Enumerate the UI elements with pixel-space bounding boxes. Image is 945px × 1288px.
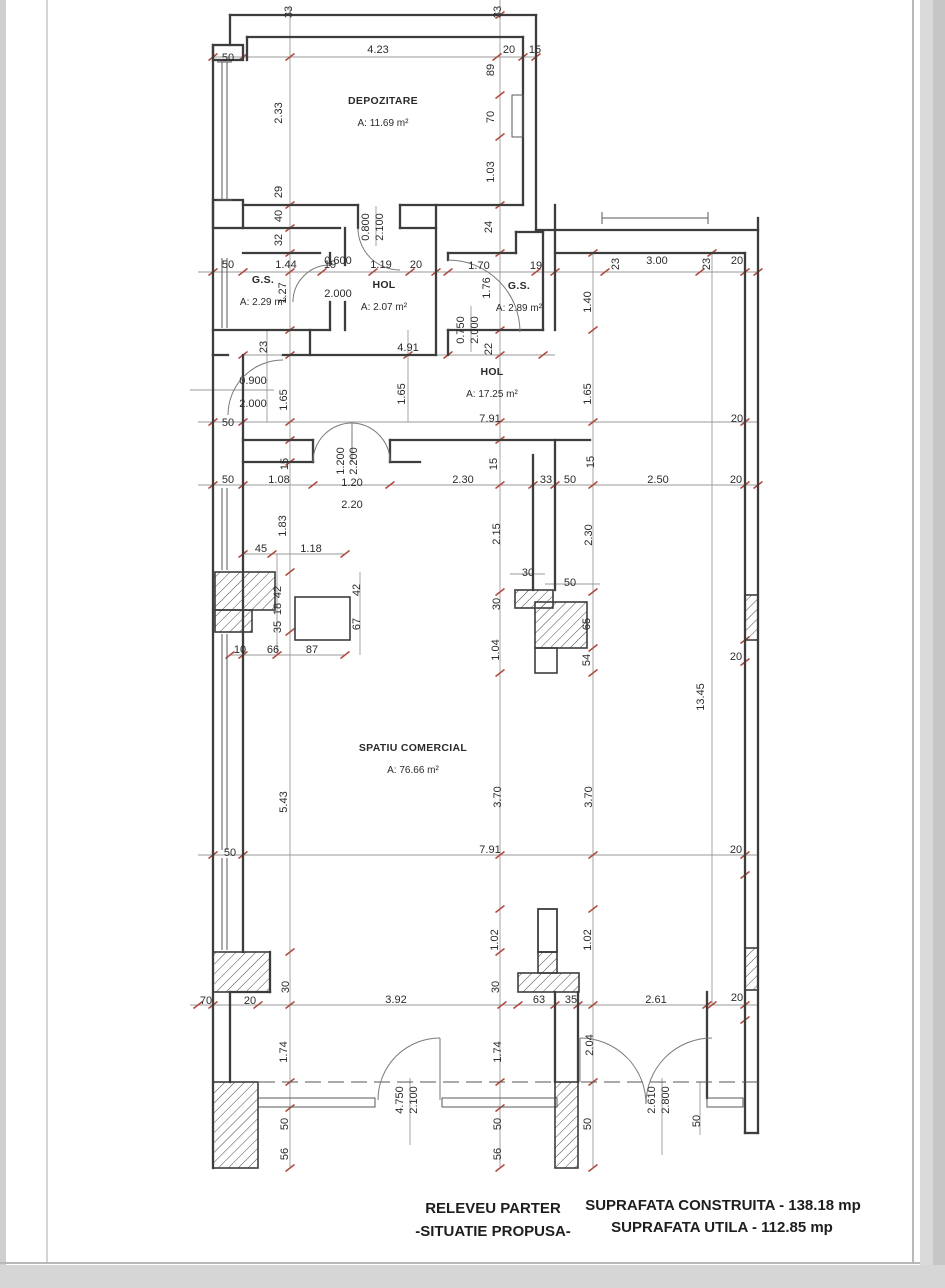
dimension-label: 32 [273, 234, 285, 246]
dimension-label: 50 [564, 474, 576, 486]
dimension-label: 2.50 [647, 474, 668, 486]
dimension-label: 89 [485, 64, 497, 76]
dimension-label: 22 [483, 343, 495, 355]
dimension-label: 1.04 [490, 639, 502, 660]
dimension-label: 19 [530, 260, 542, 272]
dimension-label: 23 [258, 341, 270, 353]
dimension-label: 42 [351, 584, 363, 596]
room-name-label: G.S. [508, 280, 530, 292]
dimension-label: 35 [565, 994, 577, 1006]
dimension-label: 1.08 [268, 474, 289, 486]
dimension-label: 70 [200, 995, 212, 1007]
dimension-label: 0.800 [360, 213, 372, 241]
dimension-label: 23 [701, 258, 713, 270]
dimension-label: 2.04 [584, 1034, 596, 1055]
dimension-label: 50 [224, 847, 236, 859]
room-area-label: A: 2.89 m² [496, 303, 543, 314]
dimension-label: 2.33 [273, 102, 285, 123]
dimension-label: 20 [503, 44, 515, 56]
dimension-label: 1.20 [341, 477, 362, 489]
dimension-label: 30 [491, 598, 503, 610]
floor-plan-svg: 3333504.232015892.33701.03294032240.8002… [0, 0, 945, 1288]
dimension-label: 2.000 [469, 316, 481, 344]
dimension-label: 50 [492, 1118, 504, 1130]
dimension-label: 15 [585, 456, 597, 468]
dimension-label: 1.65 [396, 383, 408, 404]
dimension-label: 20 [731, 255, 743, 267]
dimension-label: 0.600 [324, 255, 352, 267]
dimension-label: 50 [222, 52, 234, 64]
dimension-label: 4.23 [367, 44, 388, 56]
dimension-label: 18 [272, 603, 284, 615]
dimension-label: 1.44 [275, 259, 296, 271]
dimension-label: 10 [234, 644, 246, 656]
dimension-label: 30 [280, 981, 292, 993]
dimension-label: 7.91 [479, 413, 500, 425]
dimension-label: 20 [410, 259, 422, 271]
dimension-label: 4.750 [394, 1086, 406, 1114]
dimension-label: 45 [255, 543, 267, 555]
dimension-label: 13.45 [695, 683, 707, 711]
dimension-label: 2.800 [660, 1086, 672, 1114]
dimension-label: 1.74 [492, 1041, 504, 1062]
dimension-label: 1.02 [582, 929, 594, 950]
paper-background [0, 0, 945, 1288]
dimension-label: 30 [522, 567, 534, 579]
dimension-label: 2.20 [341, 499, 362, 511]
dimension-label: 33 [492, 6, 504, 18]
dimension-label: 3.70 [492, 786, 504, 807]
dimension-label: 35 [272, 621, 284, 633]
dimension-label: 56 [279, 1148, 291, 1160]
dimension-label: 1.76 [481, 277, 493, 298]
dimension-label: 0.900 [239, 375, 267, 387]
dimension-label: 2.200 [348, 447, 360, 475]
dimension-label: 2.61 [645, 994, 666, 1006]
dimension-label: 2.000 [239, 398, 267, 410]
dimension-label: 4.91 [397, 342, 418, 354]
dimension-label: 20 [730, 474, 742, 486]
dimension-label: 2.000 [324, 288, 352, 300]
dimension-label: 3.92 [385, 994, 406, 1006]
dimension-label: 50 [582, 1118, 594, 1130]
dimension-label: 1.18 [300, 543, 321, 555]
dimension-label: 0.750 [455, 316, 467, 344]
dimension-label: 42 [272, 586, 284, 598]
dimension-label: 2.30 [583, 524, 595, 545]
dimension-label: 20 [730, 651, 742, 663]
dimension-label: 50 [279, 1118, 291, 1130]
dimension-label: 29 [273, 186, 285, 198]
dimension-label: 20 [730, 844, 742, 856]
dimension-label: 24 [483, 221, 495, 233]
dimension-label: 2.30 [452, 474, 473, 486]
dimension-label: 65 [581, 618, 593, 630]
dimension-label: 50 [691, 1115, 703, 1127]
dimension-label: 40 [273, 210, 285, 222]
dimension-label: 5.43 [278, 791, 290, 812]
dimension-label: 7.91 [479, 844, 500, 856]
dimension-label: 70 [485, 111, 497, 123]
dimension-label: 1.02 [489, 929, 501, 950]
dimension-label: 20 [731, 413, 743, 425]
dimension-label: 30 [490, 981, 502, 993]
room-area-label: A: 76.66 m² [387, 765, 439, 776]
room-area-label: A: 17.25 m² [466, 389, 518, 400]
dimension-label: 50 [222, 417, 234, 429]
dimension-label: 1.83 [277, 515, 289, 536]
room-name-label: HOL [480, 366, 503, 378]
dimension-label: 54 [581, 654, 593, 666]
dimension-label: 87 [306, 644, 318, 656]
dimension-label: 67 [351, 618, 363, 630]
room-name-label: HOL [372, 279, 395, 291]
room-name-label: DEPOZITARE [348, 95, 418, 107]
area-usable-label: SUPRAFATA UTILA - 112.85 mp [611, 1219, 833, 1236]
dimension-label: 66 [267, 644, 279, 656]
dimension-label: 33 [540, 474, 552, 486]
dimension-label: 1.65 [582, 383, 594, 404]
dimension-label: 2.15 [491, 523, 503, 544]
dimension-label: 50 [564, 577, 576, 589]
dimension-label: 2.100 [374, 213, 386, 241]
dimension-label: 1.19 [370, 259, 391, 271]
room-name-label: G.S. [252, 274, 274, 286]
dimension-label: 20 [731, 992, 743, 1004]
room-area-label: A: 2.07 m² [361, 302, 408, 313]
area-built-label: SUPRAFATA CONSTRUITA - 138.18 mp [585, 1197, 861, 1214]
room-name-label: SPATIU COMERCIAL [359, 742, 468, 754]
dimension-label: 15 [279, 458, 291, 470]
dimension-label: 33 [283, 6, 295, 18]
dimension-label: 63 [533, 994, 545, 1006]
dimension-label: 50 [222, 474, 234, 486]
dimension-label: 3.70 [583, 786, 595, 807]
plan-title-line1: RELEVEU PARTER [425, 1200, 561, 1217]
dimension-label: 1.65 [278, 389, 290, 410]
scanned-floor-plan-page: 3333504.232015892.33701.03294032240.8002… [0, 0, 945, 1288]
dimension-label: 15 [529, 44, 541, 56]
room-area-label: A: 11.69 m² [358, 118, 410, 129]
dimension-label: 1.200 [335, 447, 347, 475]
dimension-label: 15 [488, 458, 500, 470]
dimension-label: 3.00 [646, 255, 667, 267]
room-area-label: A: 2.29 m² [240, 297, 287, 308]
dimension-label: 1.74 [278, 1041, 290, 1062]
dimension-label: 23 [610, 258, 622, 270]
dimension-label: 50 [222, 259, 234, 271]
dimension-label: 20 [244, 995, 256, 1007]
plan-title-line2: -SITUATIE PROPUSA- [415, 1223, 571, 1240]
dimension-label: 1.03 [485, 161, 497, 182]
dimension-label: 1.70 [468, 260, 489, 272]
dimension-label: 2.610 [646, 1086, 658, 1114]
dimension-label: 2.100 [408, 1086, 420, 1114]
dimension-label: 56 [492, 1148, 504, 1160]
dimension-label: 1.40 [582, 291, 594, 312]
